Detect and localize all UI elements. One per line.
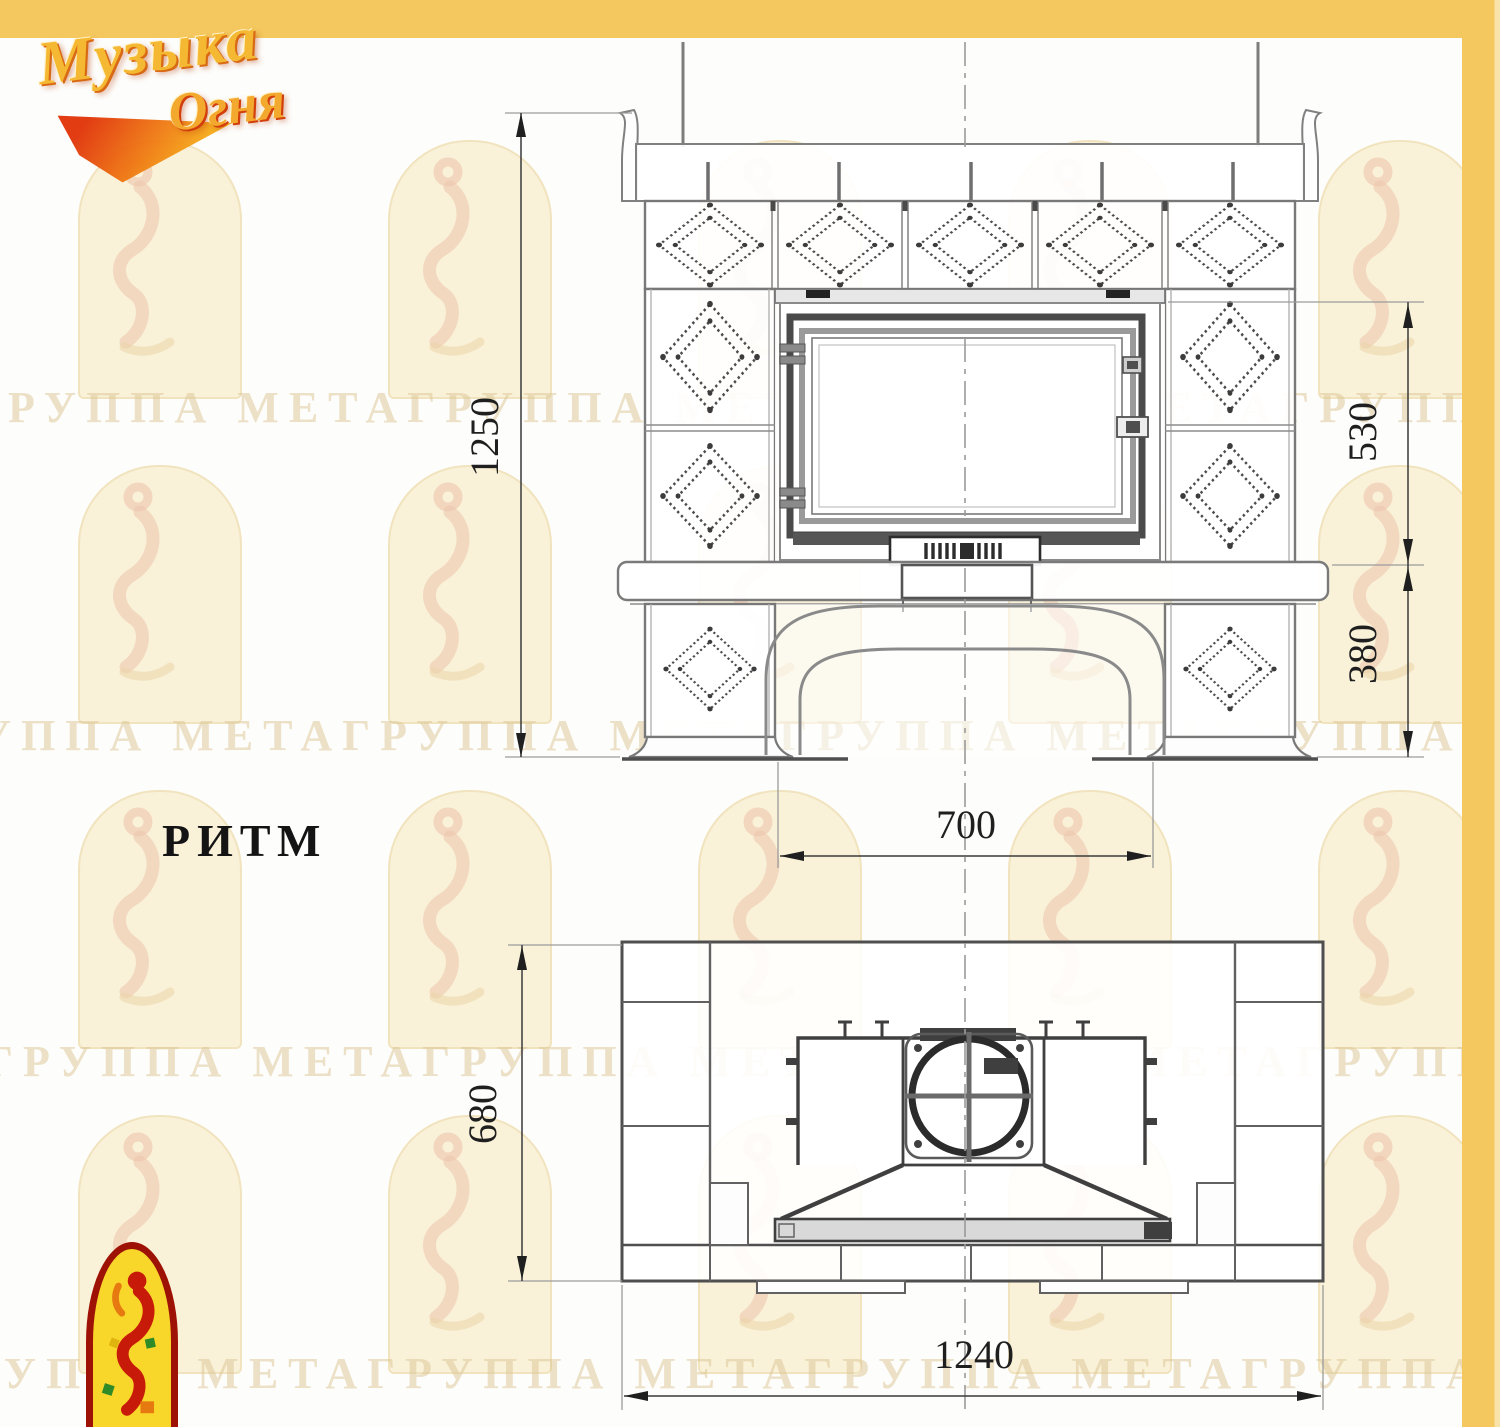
- cornice: [620, 110, 1320, 201]
- tile-column-left: [645, 289, 775, 562]
- door-handle: [1123, 357, 1142, 373]
- model-title: РИТМ: [162, 814, 327, 867]
- door-latch: [1117, 417, 1148, 437]
- dim-label-530: 530: [1340, 402, 1385, 462]
- anchor-clip: [1106, 290, 1130, 298]
- brand-logo-line2: Огня: [165, 68, 288, 144]
- firebox-front-plan: [775, 1219, 1170, 1241]
- dim-depth: 680: [460, 945, 622, 1281]
- front-view: [618, 42, 1328, 759]
- tile-column-right: [1165, 289, 1295, 562]
- scanned-drawing-page: ГРУППА МЕТАГРУППА МЕТАГРУППА МЕТАГРУППА …: [0, 0, 1500, 1427]
- plan-view: [622, 942, 1323, 1293]
- dim-base-height: 380: [1340, 567, 1413, 755]
- anchor-clip: [806, 290, 830, 298]
- fire-dancer-emblem-icon: [86, 1242, 178, 1427]
- dim-label-380: 380: [1340, 624, 1385, 684]
- hearth-tab: [1040, 1281, 1188, 1293]
- firebox: [775, 289, 1165, 565]
- base-section: [622, 604, 1318, 759]
- tile-row-top: [645, 201, 1295, 289]
- hearth-tab: [757, 1281, 905, 1293]
- fireplace-technical-drawing: 1250 530 380 700: [0, 0, 1500, 1427]
- dim-label-680: 680: [460, 1084, 505, 1144]
- damper-handle: [984, 1058, 1018, 1074]
- door-glass: [812, 338, 1122, 514]
- dim-label-1240: 1240: [934, 1332, 1014, 1377]
- page-right-yellow-band: [1462, 0, 1500, 1427]
- dim-overall-height: 1250: [462, 113, 632, 757]
- dim-width: 1240: [622, 1285, 1323, 1410]
- chimney-lines: [683, 42, 1258, 147]
- dim-arch-width: 700: [778, 762, 1153, 868]
- dim-label-700: 700: [936, 802, 996, 847]
- dim-label-1250: 1250: [462, 397, 507, 477]
